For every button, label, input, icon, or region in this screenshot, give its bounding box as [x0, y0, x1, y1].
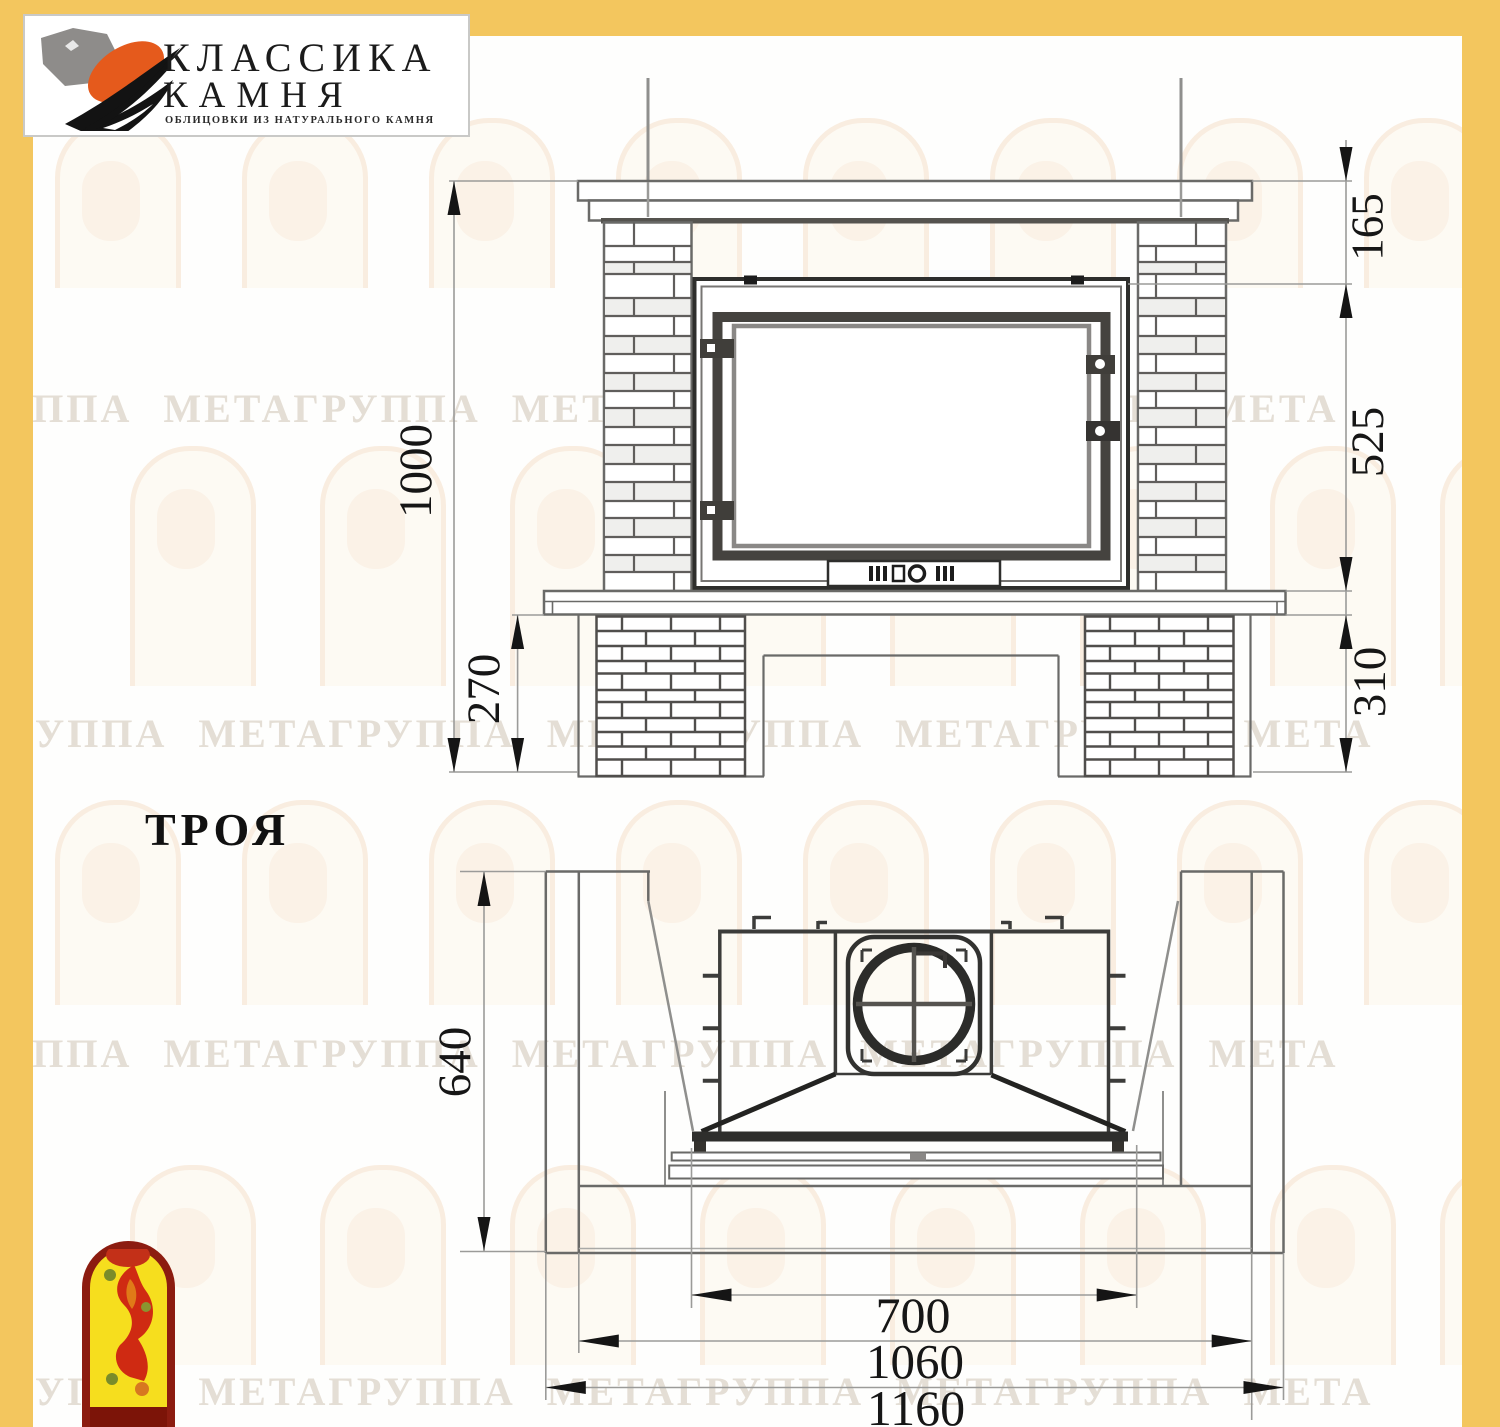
svg-text:165: 165: [1342, 193, 1392, 261]
svg-text:640: 640: [429, 1027, 481, 1098]
svg-text:270: 270: [458, 654, 510, 725]
svg-text:310: 310: [1344, 647, 1396, 718]
svg-text:1000: 1000: [390, 424, 442, 518]
svg-text:1160: 1160: [867, 1380, 965, 1427]
svg-text:525: 525: [1342, 407, 1394, 478]
